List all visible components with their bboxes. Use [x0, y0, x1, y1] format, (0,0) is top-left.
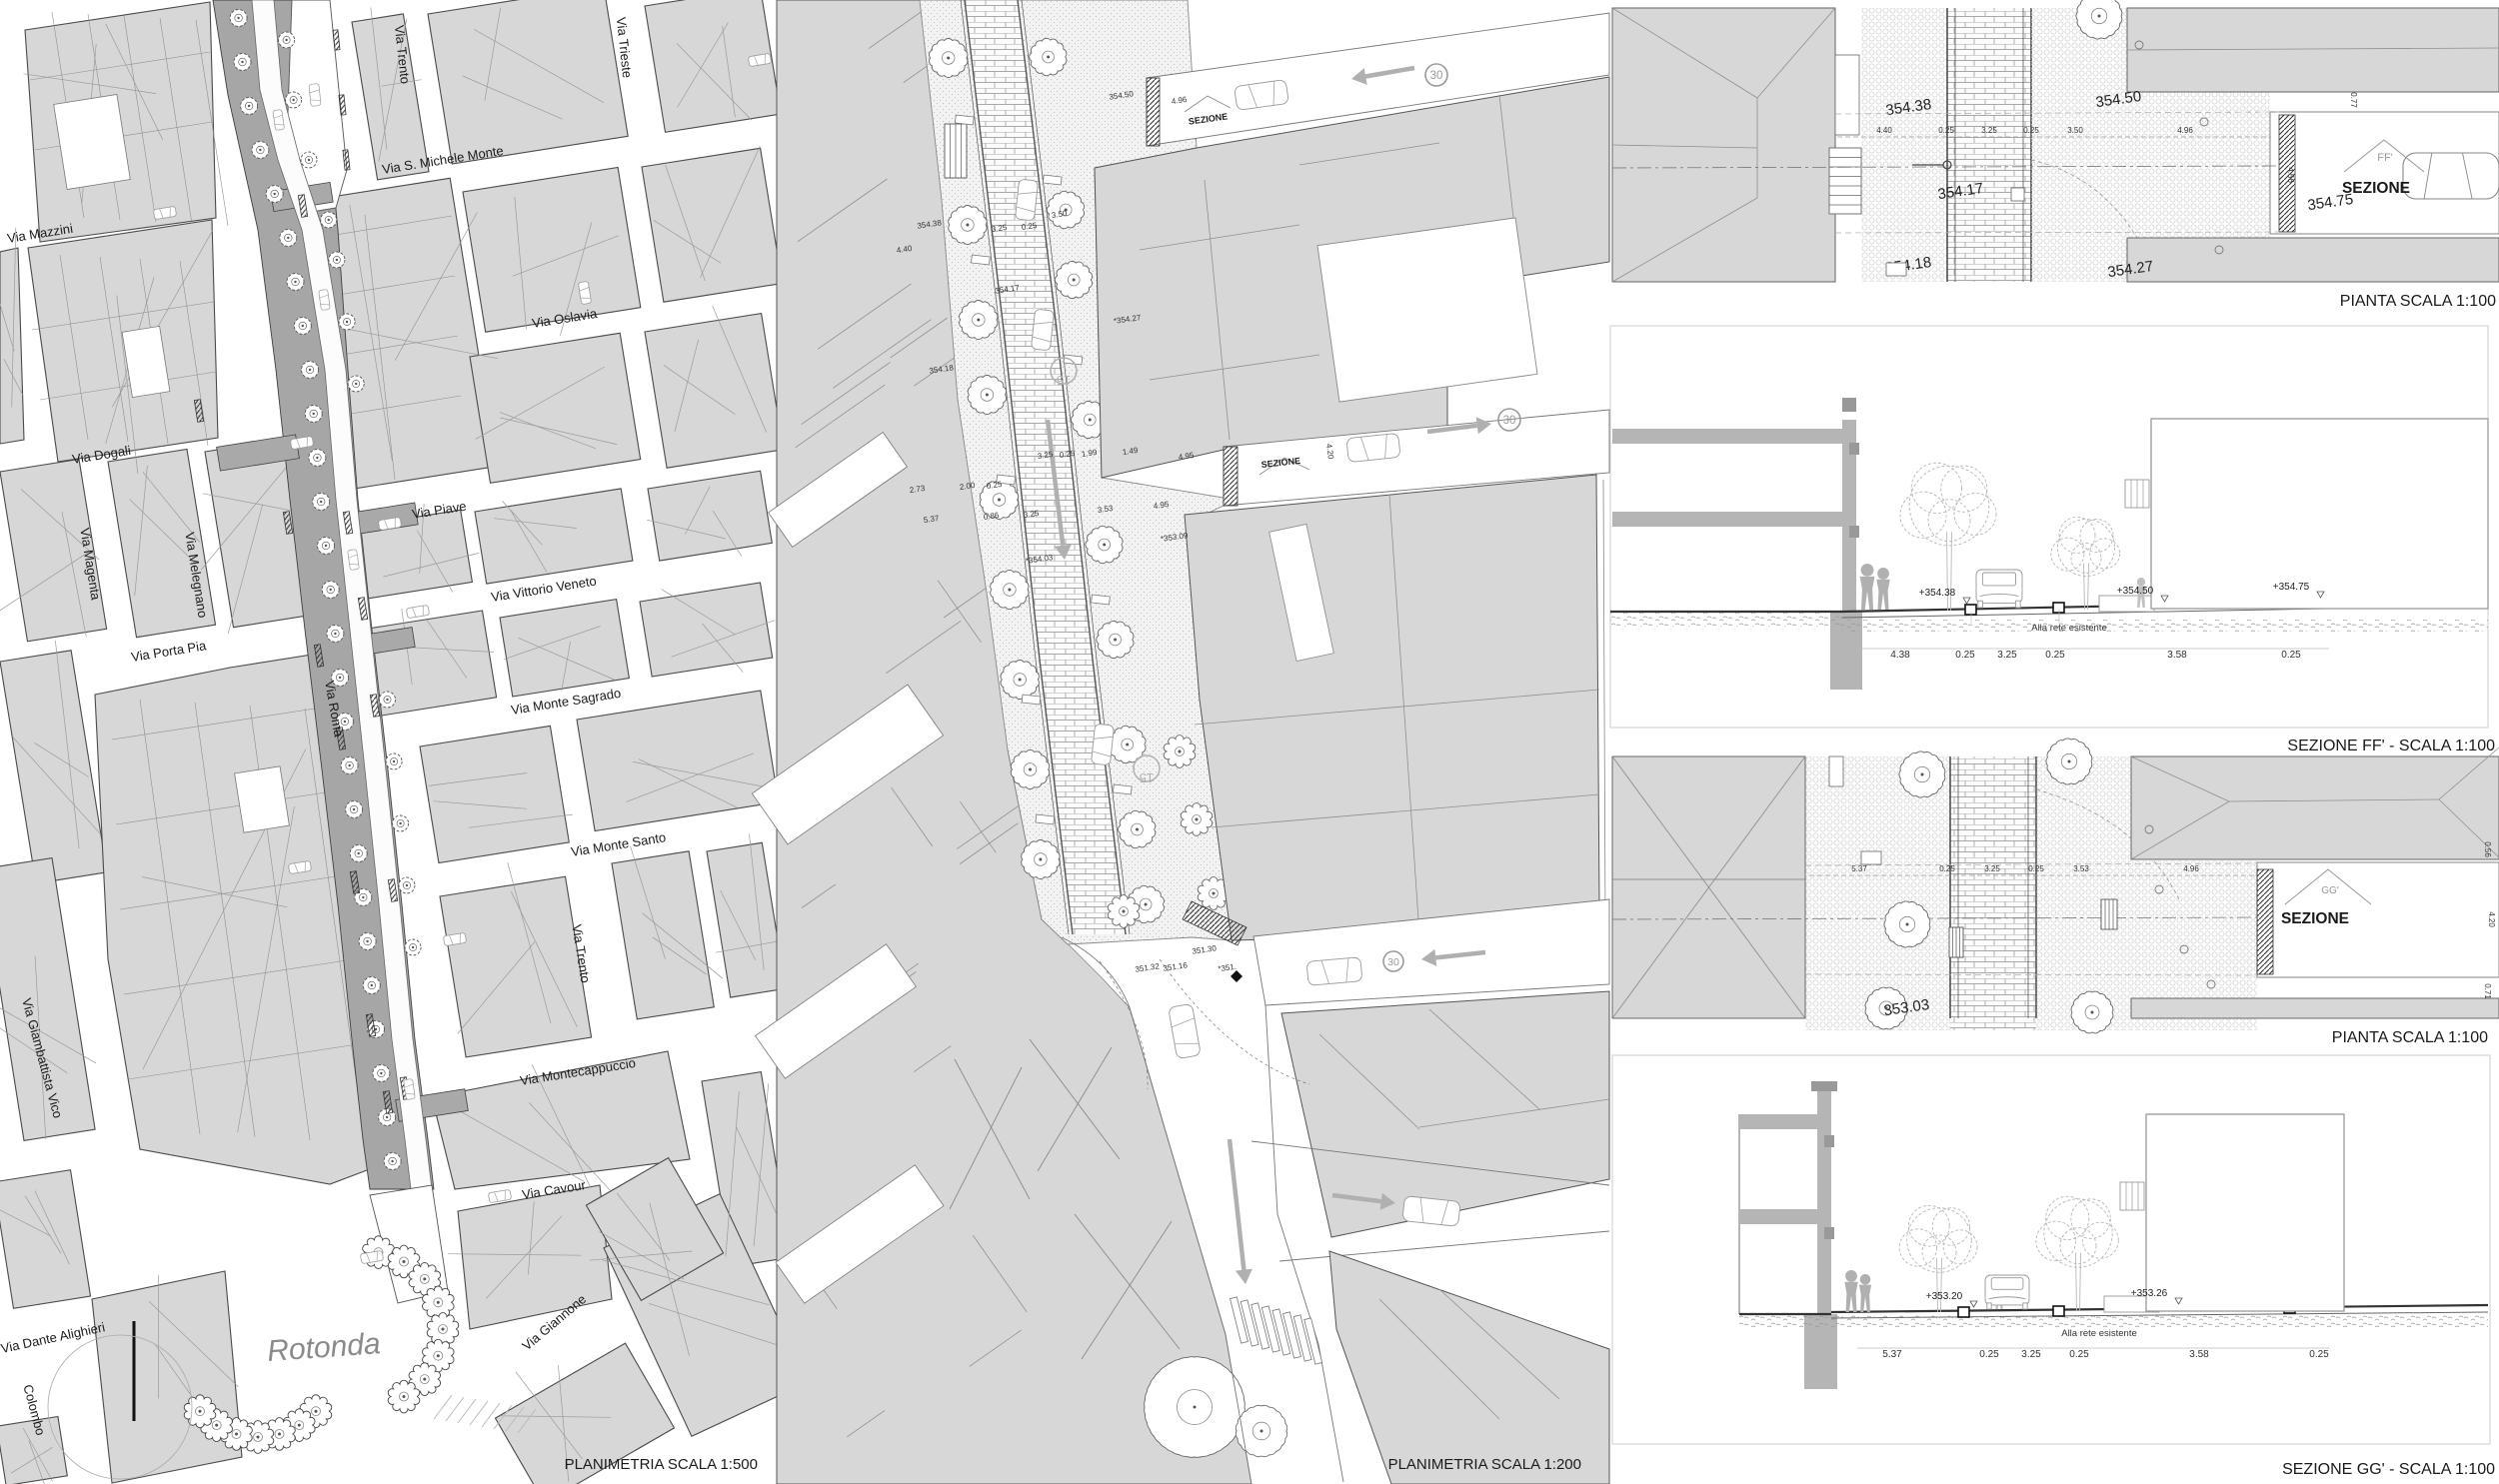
svg-text:PLANIMETRIA SCALA 1:200: PLANIMETRIA SCALA 1:200	[1388, 1456, 1581, 1473]
svg-text:+353.26: +353.26	[2131, 1288, 2168, 1299]
svg-text:0.25: 0.25	[1939, 864, 1955, 873]
svg-text:SEZIONE: SEZIONE	[2281, 910, 2349, 927]
svg-text:0.25: 0.25	[2281, 650, 2301, 661]
svg-text:4.96: 4.96	[2177, 126, 2193, 135]
svg-text:FF': FF'	[2377, 152, 2393, 164]
svg-text:+354.50: +354.50	[2117, 586, 2154, 597]
svg-text:3.25: 3.25	[1997, 650, 2017, 661]
svg-text:PIANTA SCALA 1:100: PIANTA SCALA 1:100	[2340, 293, 2496, 310]
svg-text:3.25: 3.25	[1984, 864, 2000, 873]
svg-text:3.50: 3.50	[2067, 126, 2083, 135]
svg-text:4.20: 4.20	[2487, 911, 2496, 927]
svg-text:4.40: 4.40	[1876, 126, 1892, 135]
svg-text:+354.38: +354.38	[1919, 588, 1956, 599]
svg-text:5.37: 5.37	[1882, 1349, 1902, 1360]
svg-text:SEZIONE GG' - SCALA 1:100: SEZIONE GG' - SCALA 1:100	[2282, 1461, 2495, 1478]
svg-text:SEZIONE FF' - SCALA 1:100: SEZIONE FF' - SCALA 1:100	[2287, 738, 2495, 754]
svg-text:0.71: 0.71	[2483, 983, 2492, 999]
svg-text:0.25: 0.25	[2023, 126, 2039, 135]
svg-text:Alla rete esistente: Alla rete esistente	[2031, 623, 2107, 634]
svg-text:3.58: 3.58	[2167, 650, 2187, 661]
svg-text:30: 30	[1503, 415, 1516, 427]
svg-text:+353.20: +353.20	[1926, 1291, 1963, 1302]
svg-text:3.25: 3.25	[1981, 126, 1997, 135]
svg-text:0.25: 0.25	[1938, 126, 1954, 135]
svg-text:15: 15	[1057, 373, 1071, 388]
svg-text:3.53: 3.53	[2073, 864, 2089, 873]
svg-text:4.96: 4.96	[2183, 864, 2199, 873]
svg-text:4.38: 4.38	[1890, 650, 1910, 661]
svg-text:0.77: 0.77	[2349, 92, 2358, 108]
svg-text:PIANTA SCALA 1:100: PIANTA SCALA 1:100	[2332, 1029, 2488, 1046]
svg-text:0.25: 0.25	[1979, 1349, 1999, 1360]
svg-text:0.56: 0.56	[2483, 841, 2492, 857]
svg-text:0.25: 0.25	[2309, 1349, 2329, 1360]
svg-text:PLANIMETRIA SCALA 1:500: PLANIMETRIA SCALA 1:500	[565, 1456, 758, 1473]
svg-text:0.25: 0.25	[2045, 650, 2065, 661]
svg-text:0.25: 0.25	[2028, 864, 2044, 873]
svg-text:3.25: 3.25	[2021, 1349, 2041, 1360]
svg-text:+354.75: +354.75	[2273, 582, 2310, 593]
svg-text:30: 30	[1387, 956, 1399, 968]
svg-text:4.56: 4.56	[2286, 167, 2295, 183]
svg-text:5.37: 5.37	[1851, 864, 1867, 873]
svg-text:0.25: 0.25	[2069, 1349, 2089, 1360]
svg-text:GG': GG'	[2321, 885, 2339, 896]
svg-text:30: 30	[1430, 70, 1443, 82]
svg-text:15: 15	[1140, 770, 1154, 785]
svg-text:Alla rete esistente: Alla rete esistente	[2061, 1328, 2137, 1339]
svg-text:0.25: 0.25	[1955, 650, 1975, 661]
svg-text:3.58: 3.58	[2189, 1349, 2209, 1360]
